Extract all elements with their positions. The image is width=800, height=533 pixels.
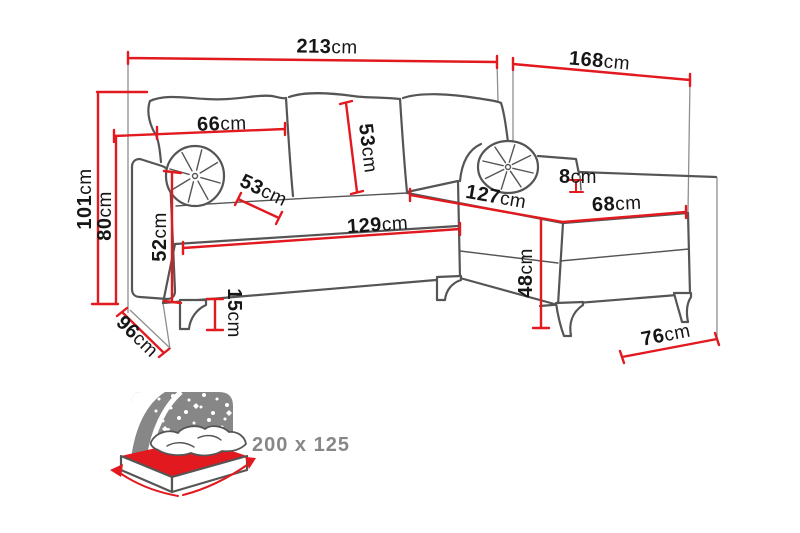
sofa-leg <box>180 300 206 329</box>
sofa-leg <box>437 276 461 300</box>
bed-size-label: 200 x 125 <box>252 434 350 456</box>
dim-label-53-cushion: 53cm <box>354 122 382 174</box>
dim-label-68: 68cm <box>591 192 642 217</box>
dim-label-213: 213cm <box>296 35 358 58</box>
dim-label-52: 52cm <box>149 212 171 262</box>
dim-label-15: 15cm <box>223 288 245 338</box>
sofa-leg <box>556 302 583 336</box>
dim-label-48: 48cm <box>515 248 537 298</box>
sofa-leg <box>674 293 691 322</box>
dim-label-8: 8cm <box>559 166 597 188</box>
dim-label-101: 101cm <box>74 168 96 229</box>
dim-label-53-seat: 53cm <box>236 170 290 211</box>
furniture-dimension-diagram: 213cm 168cm 66cm 53cm 53cm 8cm 101cm 80c… <box>0 0 800 533</box>
dim-line-15 <box>207 299 223 330</box>
dim-label-66: 66cm <box>197 112 247 136</box>
sofa-bed-icon: 200 x 125 <box>110 392 350 496</box>
round-pillow-left <box>166 146 224 206</box>
dim-label-96: 96cm <box>112 312 163 362</box>
corner-sofa-diagram: 213cm 168cm 66cm 53cm 53cm 8cm 101cm 80c… <box>0 0 800 533</box>
dim-label-129: 129cm <box>346 212 409 238</box>
dim-label-80: 80cm <box>94 191 116 241</box>
